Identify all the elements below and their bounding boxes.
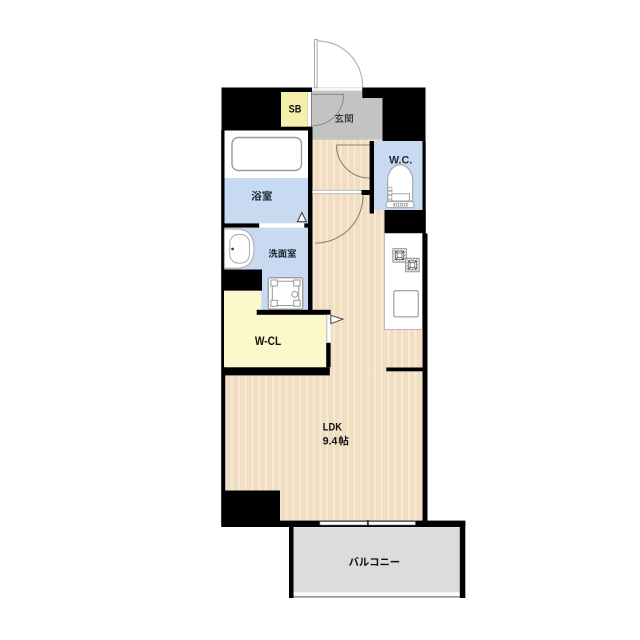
svg-text:SB: SB bbox=[289, 104, 302, 116]
svg-text:9.4: 9.4 bbox=[323, 436, 338, 448]
svg-text:LDK: LDK bbox=[323, 422, 342, 434]
svg-text:W-CL: W-CL bbox=[255, 334, 281, 348]
